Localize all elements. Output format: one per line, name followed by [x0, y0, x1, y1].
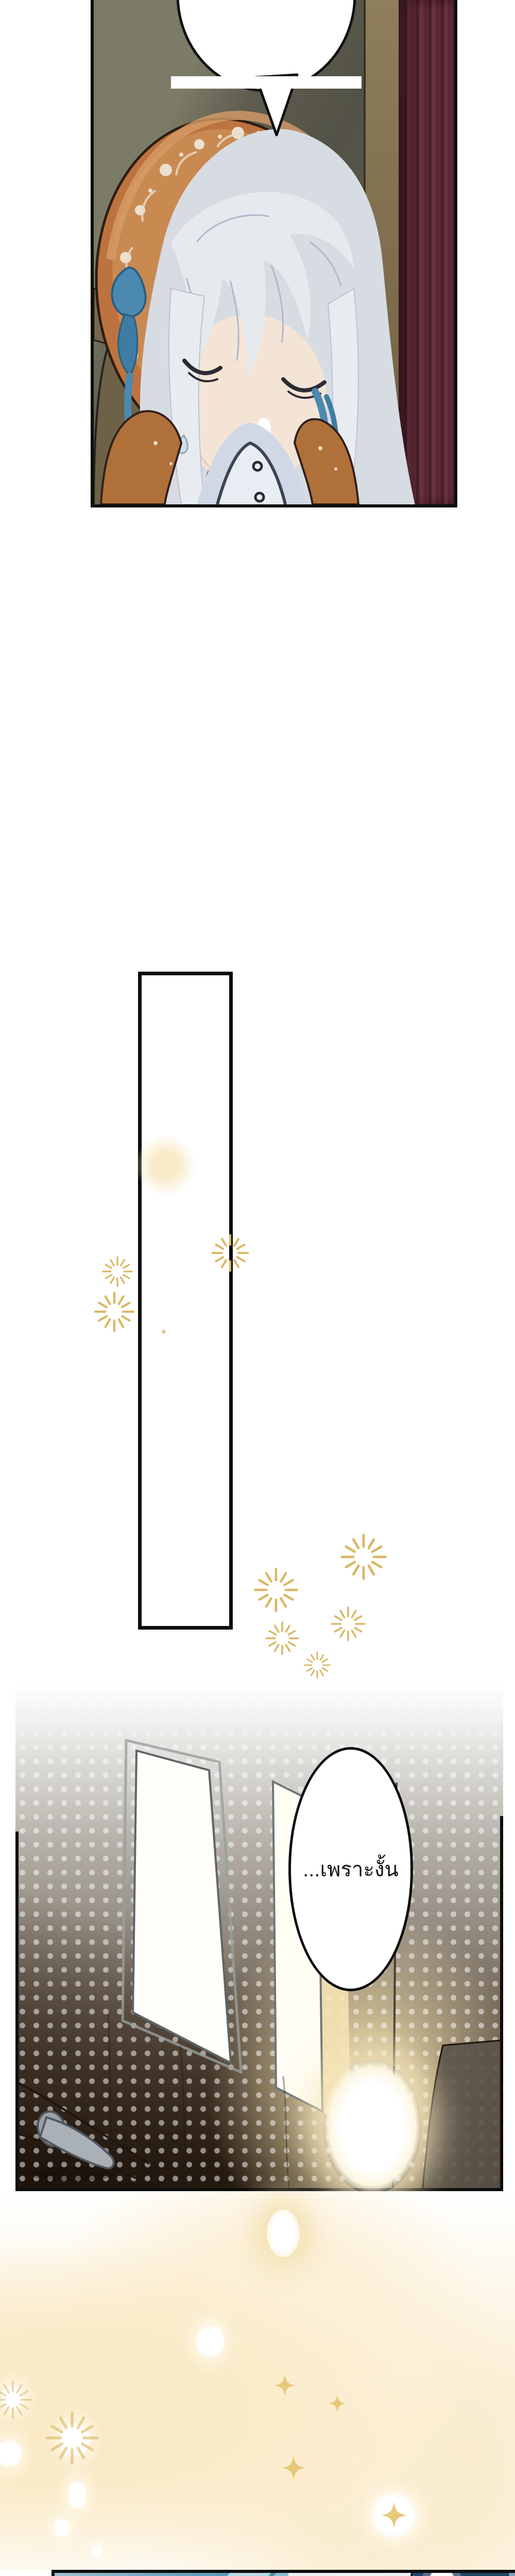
sparkle-burst-icon — [330, 1605, 367, 1642]
edge-light-strip — [509, 2573, 515, 2576]
panel-request-scene: หนูเลยอยากให้ เพสเทรอสช่วยเหลือ เด็กพวกน… — [51, 2570, 515, 2576]
bokeh-light — [196, 2323, 224, 2361]
bokeh-light — [55, 2516, 69, 2539]
webtoon-page: ...เพราะงั้น — [0, 0, 515, 2576]
panel-border-left — [15, 1832, 19, 2191]
sparkle-burst-icon — [264, 1620, 300, 1656]
bokeh-light — [68, 2476, 86, 2513]
sparkle-star-icon — [380, 2501, 408, 2530]
speech-bubble-top — [156, 0, 398, 144]
sparkle-burst-icon — [339, 1532, 388, 1582]
bokeh-halo — [422, 2573, 461, 2576]
panel-door-crack — [138, 972, 233, 1630]
door-pane-left — [133, 1751, 231, 2063]
panel-shout-scene — [91, 0, 457, 507]
door-handle-icon — [31, 2108, 114, 2181]
speech-bubble-mid: ...เพราะงั้น — [288, 1747, 413, 1991]
light-streak — [183, 2573, 271, 2576]
panel-dark-door-room — [15, 1685, 503, 2191]
sparkle-burst-icon — [93, 1290, 136, 1333]
shadow-shape — [422, 2040, 503, 2191]
sparkle-burst-icon — [252, 1566, 300, 1614]
panel-border-right — [500, 1816, 503, 2191]
bokeh-light — [92, 2544, 102, 2558]
sparkle-star-icon — [328, 2394, 347, 2413]
soft-glow-icon — [135, 1134, 197, 1196]
sparkle-burst-icon — [101, 1255, 134, 1288]
sparkle-star-icon — [280, 2454, 307, 2481]
request-scene-art — [55, 2573, 515, 2576]
door-art — [15, 1685, 503, 2191]
bokeh-light — [267, 2210, 300, 2257]
sparkle-burst-icon — [44, 2410, 100, 2466]
sparkle-burst-icon — [303, 1651, 332, 1680]
sparkle-burst-icon — [0, 2379, 33, 2420]
speech-bubble-mid-text: ...เพราะงั้น — [303, 1853, 399, 1886]
glowing-orb — [323, 2060, 421, 2191]
sparkle-burst-icon — [210, 1233, 250, 1273]
sparkle-dot-icon — [162, 1330, 166, 1334]
sparkle-star-icon — [273, 2374, 297, 2397]
